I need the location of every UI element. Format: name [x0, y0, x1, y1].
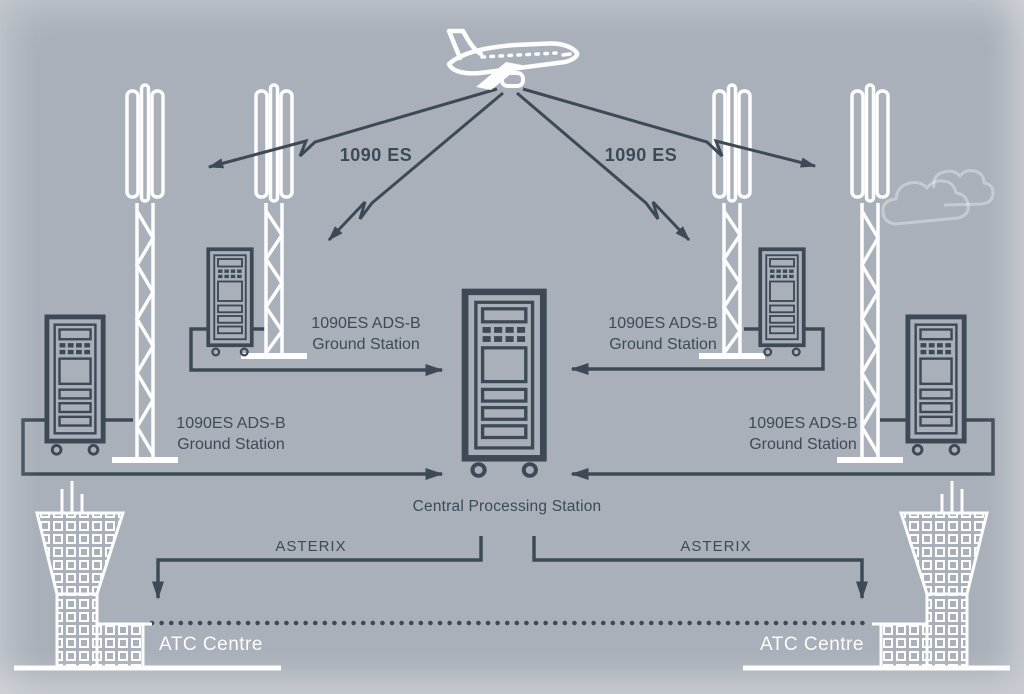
cloud-icon [883, 171, 993, 224]
ground-station-label-inner-right: 1090ES ADS-B Ground Station [608, 313, 717, 355]
ground-station-rack-outer-right-icon [908, 317, 964, 454]
radio-link-inner-left [329, 93, 503, 240]
adsb-architecture-diagram: 1090 ES 1090 ES 1090ES ADS-B Ground Stat… [0, 0, 1024, 694]
ground-station-rack-inner-left-icon [208, 249, 252, 355]
ground-station-rack-inner-right-icon [760, 249, 804, 355]
airplane-icon [449, 31, 577, 90]
ground-station-label-outer-right: 1090ES ADS-B Ground Station [748, 413, 857, 455]
central-processing-station-label: Central Processing Station [413, 498, 602, 516]
atc-centre-label-right: ATC Centre [760, 634, 864, 656]
asterix-label-left: ASTERIX [275, 538, 346, 555]
radio-link-inner-right [517, 93, 689, 240]
atc-centre-label-left: ATC Centre [159, 634, 263, 656]
antenna-tower-outer-left-icon [112, 85, 178, 460]
antenna-tower-outer-right-icon [837, 85, 903, 460]
ground-station-rack-outer-left-icon [47, 317, 103, 454]
asterix-links [152, 536, 866, 623]
ground-station-label-inner-left: 1090ES ADS-B Ground Station [311, 313, 420, 355]
uplink-protocol-label-left: 1090 ES [340, 145, 413, 166]
uplink-protocol-label-right: 1090 ES [605, 145, 678, 166]
diagram-graphics [0, 0, 1024, 694]
ground-station-label-outer-left: 1090ES ADS-B Ground Station [176, 413, 285, 455]
central-processing-rack-icon [465, 292, 543, 476]
asterix-label-right: ASTERIX [680, 538, 751, 555]
